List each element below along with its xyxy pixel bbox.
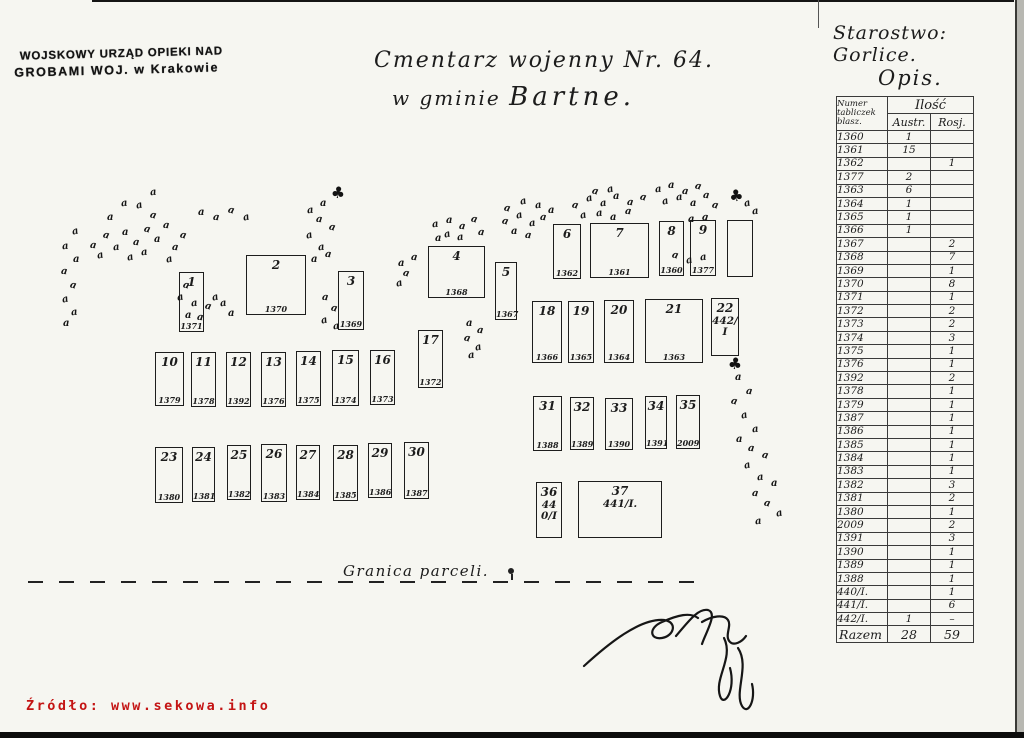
grave-number: 1377	[837, 171, 888, 184]
shrub-doodle: a	[165, 253, 174, 265]
opis-row: 13891	[837, 559, 974, 572]
shrub-doodle: a	[591, 185, 600, 197]
grave-plot: 161373	[370, 350, 395, 405]
grave-plot: 121392	[226, 352, 251, 407]
count-ros: 1	[931, 425, 974, 438]
plot-grave-number: 1382	[228, 489, 250, 499]
plot-number: 24	[193, 450, 214, 464]
plot-grave-number: 1368	[429, 287, 484, 297]
shrub-doodle: a	[122, 227, 128, 238]
count-ros: –	[931, 613, 974, 626]
shrub-doodle: a	[763, 497, 772, 509]
opis-row: 442/I.1–	[837, 613, 974, 626]
plot-number: 18	[533, 304, 561, 318]
grave-number: 1368	[837, 251, 888, 264]
shrub-doodle: a	[431, 219, 439, 231]
shrub-doodle: a	[515, 209, 524, 221]
shrub-doodle: a	[756, 472, 764, 484]
grave-plot: 41368	[428, 246, 485, 298]
count-ros: 1	[931, 505, 974, 518]
shrub-doodle: a	[135, 199, 144, 211]
plot-number: 14	[297, 354, 320, 368]
count-austr: 1	[888, 131, 931, 144]
plot-grave-number: 1378	[192, 396, 215, 406]
grave-plot	[727, 220, 753, 277]
shrub-doodle: a	[190, 298, 198, 310]
shrub-doodle: a	[212, 212, 220, 224]
plot-grave-number: 1364	[605, 352, 633, 362]
shrub-doodle: a	[317, 242, 325, 254]
razem-ros-total: 59	[931, 626, 974, 643]
count-austr	[888, 519, 931, 532]
shrub-doodle: a	[149, 209, 158, 221]
shrub-doodle: a	[775, 507, 784, 519]
count-ros	[931, 171, 974, 184]
opis-row: 13722	[837, 305, 974, 318]
shrub-doodle: a	[60, 266, 68, 278]
plot-number: 30	[405, 445, 428, 459]
shrub-doodle: a	[198, 207, 204, 218]
shrub-doodle: a	[305, 229, 314, 241]
grave-number: 1363	[837, 184, 888, 197]
count-austr	[888, 452, 931, 465]
shrub-doodle: a	[740, 409, 749, 421]
shrub-doodle: a	[548, 205, 554, 216]
grave-plot: 171372	[418, 330, 443, 388]
grave-plot: 301387	[404, 442, 429, 499]
count-ros: 3	[931, 479, 974, 492]
shrub-doodle: a	[470, 213, 479, 225]
shrub-doodle: a	[699, 252, 707, 264]
count-austr	[888, 264, 931, 277]
opis-row: 13901	[837, 546, 974, 559]
opis-row: 13672	[837, 238, 974, 251]
shrub-doodle: a	[435, 233, 441, 244]
count-ros	[931, 211, 974, 224]
shrub-doodle: a	[185, 310, 191, 321]
count-ros	[931, 184, 974, 197]
shrub-doodle: a	[730, 395, 739, 407]
shrub-doodle: a	[771, 478, 777, 489]
plot-grave-number: 1377	[691, 265, 715, 275]
plot-number: 2	[247, 258, 305, 272]
count-austr	[888, 586, 931, 599]
shrub-doodle: a	[456, 232, 464, 244]
shrub-doodle: a	[89, 240, 97, 252]
plot-grave-number: 1373	[371, 394, 394, 404]
grave-number: 1376	[837, 358, 888, 371]
shrub-doodle: a	[179, 229, 188, 241]
tree-doodle: ♣	[727, 353, 744, 374]
grave-plot: 271384	[296, 445, 320, 500]
grave-number: 442/I.	[837, 613, 888, 626]
plot-number: 33	[606, 401, 632, 415]
opis-row: 13621	[837, 157, 974, 170]
scan-edge-top	[92, 0, 1014, 2]
shrub-doodle: a	[71, 225, 80, 237]
opis-row: 13823	[837, 479, 974, 492]
shrub-doodle: a	[143, 223, 152, 235]
shrub-doodle: a	[747, 443, 755, 455]
shrub-doodle: a	[606, 183, 615, 195]
page-fold-line	[818, 0, 819, 28]
plot-number: 34	[646, 399, 666, 413]
grave-number: 1361	[837, 144, 888, 157]
opis-row: 13751	[837, 345, 974, 358]
grave-number: 1369	[837, 264, 888, 277]
count-austr	[888, 492, 931, 505]
count-austr	[888, 278, 931, 291]
grave-number: 1383	[837, 465, 888, 478]
plot-grave-number: 1386	[369, 487, 391, 497]
opis-table-header: Numer tabliczek blasz. Ilość Austr. Rosj…	[837, 97, 974, 131]
grave-plot: 101379	[155, 352, 184, 406]
scan-edge-right	[1017, 0, 1024, 738]
opis-row: 13861	[837, 425, 974, 438]
shrub-doodle: a	[227, 204, 236, 216]
shrub-doodle: a	[761, 449, 770, 461]
grave-plot: 151374	[332, 350, 359, 406]
plot-number: 32	[571, 400, 593, 414]
count-austr	[888, 546, 931, 559]
shrub-doodle: a	[524, 230, 532, 242]
plot-grave-number: 1391	[646, 438, 666, 448]
count-ros: 2	[931, 305, 974, 318]
plot-grave-number: 1370	[247, 304, 305, 314]
grave-plot: 191365	[568, 301, 594, 363]
shrub-doodle: a	[501, 215, 510, 227]
grave-plot: 61362	[553, 224, 581, 279]
plot-grave-number: 1362	[554, 268, 580, 278]
opis-row: 13791	[837, 398, 974, 411]
shrub-doodle: a	[102, 229, 111, 241]
grave-number: 1390	[837, 546, 888, 559]
opis-table-footer: Razem 28 59	[837, 626, 974, 643]
plot-number: 20	[605, 303, 633, 317]
shrub-doodle: a	[528, 218, 536, 230]
plot-number: 7	[591, 226, 648, 240]
opis-row: 13687	[837, 251, 974, 264]
plot-grave-number: 1367	[496, 309, 516, 319]
shrub-doodle: a	[694, 180, 703, 192]
plot-number: 31	[534, 399, 561, 413]
shrub-doodle: a	[154, 234, 160, 245]
opis-row: 13801	[837, 505, 974, 518]
count-ros: 1	[931, 572, 974, 585]
shrub-doodle: a	[162, 220, 170, 232]
shrub-doodle: a	[324, 249, 332, 261]
grave-number: 1362	[837, 157, 888, 170]
shrub-doodle: a	[476, 325, 484, 337]
shrub-doodle: a	[395, 277, 404, 289]
grave-plot: 231380	[155, 447, 183, 503]
opis-row: 13601	[837, 131, 974, 144]
shrub-doodle: a	[321, 292, 329, 304]
office-stamp: WOJSKOWY URZĄD OPIEKI NAD GROBAMI WOJ. w…	[20, 45, 224, 79]
plot-grave-number: 1384	[297, 489, 319, 499]
grave-number: 1392	[837, 372, 888, 385]
plot-number: 5	[496, 265, 516, 279]
count-austr	[888, 465, 931, 478]
stamp-line-2: GROBAMI WOJ. w Krakowie	[14, 60, 223, 79]
plot-grave-number: 1374	[333, 395, 358, 405]
grave-plot: 281385	[333, 445, 358, 501]
count-ros: 7	[931, 251, 974, 264]
shrub-doodle: a	[228, 308, 234, 319]
count-ros: 6	[931, 599, 974, 612]
plot-number: 15	[333, 353, 358, 367]
shrub-doodle: a	[140, 247, 148, 259]
count-austr	[888, 291, 931, 304]
shrub-doodle: a	[96, 249, 105, 261]
plot-number: 37	[579, 484, 661, 498]
shrub-doodle: a	[73, 254, 79, 265]
shrub-doodle: a	[107, 212, 113, 223]
count-austr	[888, 345, 931, 358]
shrub-doodle: a	[149, 187, 157, 199]
shrub-doodle: a	[132, 237, 140, 249]
count-ros: 2	[931, 372, 974, 385]
count-austr	[888, 331, 931, 344]
shrub-doodle: a	[306, 205, 314, 217]
signature	[578, 592, 788, 722]
grave-plot: 71361	[590, 223, 649, 278]
plot-number: 25	[228, 448, 250, 462]
shrub-doodle: a	[534, 200, 542, 212]
grave-number: 1373	[837, 318, 888, 331]
count-ros: 1	[931, 291, 974, 304]
count-ros: 1	[931, 452, 974, 465]
plot-number: 23	[156, 450, 182, 464]
shrub-doodle: a	[474, 341, 483, 353]
grave-plot: 251382	[227, 445, 251, 500]
grave-number: 1386	[837, 425, 888, 438]
scan-edge-right-line	[1015, 0, 1017, 738]
source-credit: Źródło: www.sekowa.info	[26, 698, 270, 714]
count-austr	[888, 412, 931, 425]
starostwo-label: Starostwo: Gorlice.	[833, 22, 1024, 66]
shrub-doodle: a	[61, 293, 70, 305]
count-austr: 1	[888, 613, 931, 626]
shrub-doodle: a	[120, 198, 128, 210]
opis-row: 441/I.6	[837, 599, 974, 612]
count-ros: 2	[931, 238, 974, 251]
opis-row: 13841	[837, 452, 974, 465]
grave-plot: 51367	[495, 262, 517, 320]
plot-number: 17	[419, 333, 442, 347]
shrub-doodle: a	[610, 212, 616, 223]
count-austr	[888, 157, 931, 170]
plot-grave-number: 1385	[334, 490, 357, 500]
count-austr	[888, 385, 931, 398]
count-ros: 1	[931, 586, 974, 599]
plot-number: 22	[712, 301, 738, 315]
shrub-doodle: a	[681, 186, 689, 198]
count-ros: 2	[931, 318, 974, 331]
grave-number: 1389	[837, 559, 888, 572]
village-name: Bartne.	[509, 82, 635, 112]
grave-number: 1374	[837, 331, 888, 344]
opis-row: 136115	[837, 144, 974, 157]
grave-plot: 111378	[191, 352, 216, 407]
shrub-doodle: a	[701, 212, 709, 224]
opis-row: 13871	[837, 412, 974, 425]
razem-row: Razem 28 59	[837, 626, 974, 643]
column-header-ilosc: Ilość	[888, 97, 974, 114]
shrub-doodle: a	[70, 307, 78, 319]
tree-doodle: ♣	[728, 185, 745, 206]
count-ros	[931, 197, 974, 210]
count-ros: 1	[931, 345, 974, 358]
opis-row: 440/I.1	[837, 586, 974, 599]
plant-stem	[511, 574, 513, 580]
shrub-doodle: a	[63, 318, 69, 329]
shrub-doodle: a	[328, 221, 337, 233]
plot-grave-number: 2009	[677, 438, 699, 448]
plot-number: 16	[371, 353, 394, 367]
shrub-doodle: a	[511, 226, 517, 237]
count-ros	[931, 144, 974, 157]
shrub-doodle: a	[539, 212, 547, 224]
plot-number: 13	[262, 355, 285, 369]
column-header-austr: Austr.	[888, 114, 931, 131]
plot-grave-number: 1360	[660, 265, 683, 275]
tree-doodle: ♣	[330, 182, 347, 203]
shrub-doodle: a	[751, 206, 759, 218]
scanned-cemetery-plan: WOJSKOWY URZĄD OPIEKI NAD GROBAMI WOJ. w…	[0, 0, 1024, 738]
shrub-doodle: a	[754, 516, 762, 528]
grave-plot: 36440/I	[536, 482, 562, 538]
grave-number: 1378	[837, 385, 888, 398]
shrub-doodle: a	[69, 279, 78, 291]
shrub-doodle: a	[320, 314, 329, 326]
shrub-doodle: a	[196, 312, 204, 324]
plot-number: 6	[554, 227, 580, 241]
numer-line-3: blasz.	[837, 118, 887, 127]
grave-plot: 331390	[605, 398, 633, 450]
shrub-doodle: a	[443, 228, 452, 240]
plot-number: 3	[339, 274, 363, 288]
grave-plot: 181366	[532, 301, 562, 363]
plot-grave-number: 441/I.	[579, 499, 661, 510]
opis-row: 13711	[837, 291, 974, 304]
plot-grave-number: 1387	[405, 488, 428, 498]
shrub-doodle: a	[654, 184, 662, 196]
opis-row: 13781	[837, 385, 974, 398]
opis-row: 13812	[837, 492, 974, 505]
count-austr: 15	[888, 144, 931, 157]
plot-number: 26	[262, 447, 286, 461]
shrub-doodle: a	[402, 267, 411, 279]
scan-edge-bottom	[0, 732, 1024, 738]
document-title: Cmentarz wojenny Nr. 64.	[374, 48, 714, 73]
grave-plot: 141375	[296, 351, 321, 406]
shrub-doodle: a	[204, 300, 213, 312]
shrub-doodle: a	[332, 321, 340, 333]
shrub-doodle: a	[242, 211, 251, 223]
opis-row: 13691	[837, 264, 974, 277]
shrub-doodle: a	[751, 488, 759, 500]
grave-number: 1364	[837, 197, 888, 210]
count-ros: 8	[931, 278, 974, 291]
grave-number: 1379	[837, 398, 888, 411]
plot-number: 27	[297, 448, 319, 462]
grave-number: 1387	[837, 412, 888, 425]
count-ros: 3	[931, 331, 974, 344]
opis-row: 13651	[837, 211, 974, 224]
grave-number: 1385	[837, 438, 888, 451]
opis-row: 13851	[837, 438, 974, 451]
column-header-ros: Rosj.	[931, 114, 974, 131]
plot-grave-number: 1369	[339, 319, 363, 329]
opis-row: 13761	[837, 358, 974, 371]
subtitle-prefix: w gminie	[392, 86, 501, 110]
count-ros: 1	[931, 385, 974, 398]
shrub-doodle: a	[624, 206, 632, 218]
plot-grave-number: 1392	[227, 396, 250, 406]
shrub-doodle: a	[171, 242, 179, 254]
grave-plot: 341391	[645, 396, 667, 449]
plot-grave-number: 1376	[262, 396, 285, 406]
count-austr	[888, 532, 931, 545]
opis-row: 13881	[837, 572, 974, 585]
plot-grave-number: 440/I	[537, 500, 561, 522]
count-austr	[888, 479, 931, 492]
plot-grave-number: 1383	[262, 491, 286, 501]
shrub-doodle: a	[126, 251, 135, 263]
grave-plot: 37441/I.	[578, 481, 662, 538]
grave-number: 1380	[837, 505, 888, 518]
shrub-doodle: a	[688, 214, 694, 225]
count-austr: 1	[888, 197, 931, 210]
razem-label: Razem	[837, 626, 888, 643]
count-austr: 1	[888, 211, 931, 224]
plot-grave-number: 1363	[646, 352, 702, 362]
grave-number: 1365	[837, 211, 888, 224]
grave-number: 1384	[837, 452, 888, 465]
shrub-doodle: a	[579, 209, 588, 221]
grave-number: 1366	[837, 224, 888, 237]
grave-plot: 352009	[676, 395, 700, 449]
count-austr	[888, 572, 931, 585]
plot-grave-number: 1372	[419, 377, 442, 387]
opis-row: 13831	[837, 465, 974, 478]
shrub-doodle: a	[320, 198, 326, 209]
count-ros: 1	[931, 358, 974, 371]
count-austr	[888, 251, 931, 264]
grave-plot: 21370	[246, 255, 306, 315]
plot-grave-number: 1380	[156, 492, 182, 502]
opis-row: 13661	[837, 224, 974, 237]
count-austr	[888, 305, 931, 318]
shrub-doodle: a	[702, 190, 710, 202]
grave-number: 1388	[837, 572, 888, 585]
count-ros: 2	[931, 492, 974, 505]
grave-number: 1381	[837, 492, 888, 505]
count-austr	[888, 398, 931, 411]
plot-number: 10	[156, 355, 183, 369]
grave-plot: 131376	[261, 352, 286, 407]
opis-row: 13641	[837, 197, 974, 210]
shrub-doodle: a	[446, 215, 452, 226]
count-ros: 3	[931, 532, 974, 545]
opis-table-body: 1360113611513621137721363613641136511366…	[837, 131, 974, 626]
plot-number: 4	[429, 249, 484, 263]
grave-plot: 31369	[338, 271, 364, 330]
count-austr: 6	[888, 184, 931, 197]
plot-grave-number: 1389	[571, 439, 593, 449]
grave-number: 1360	[837, 131, 888, 144]
